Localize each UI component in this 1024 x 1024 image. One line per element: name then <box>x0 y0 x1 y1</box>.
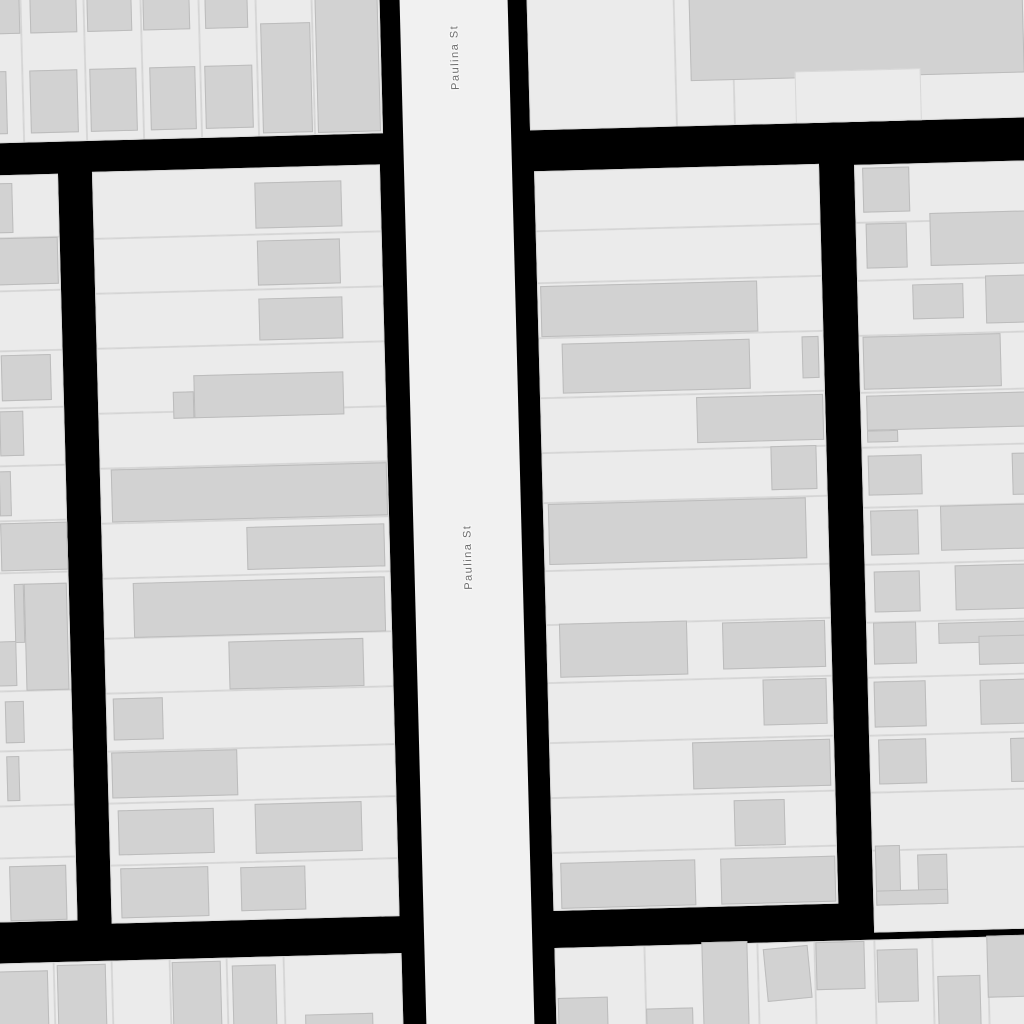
building <box>29 0 77 33</box>
building <box>980 678 1024 725</box>
block-far-right-parcel <box>870 788 1024 851</box>
building <box>1010 737 1024 782</box>
building <box>172 961 224 1024</box>
building <box>0 237 59 286</box>
building <box>0 0 20 35</box>
building <box>867 430 898 443</box>
building <box>246 523 385 570</box>
building <box>722 620 826 670</box>
building <box>929 210 1024 266</box>
building <box>14 584 26 643</box>
building <box>314 0 381 133</box>
building <box>877 949 919 1003</box>
building <box>696 394 824 443</box>
block-right-middle-parcel <box>534 164 820 231</box>
building <box>89 68 138 132</box>
building <box>9 865 67 921</box>
road-label-paulina-st: Paulina St <box>461 524 475 589</box>
block-right-middle-parcel <box>536 224 822 283</box>
building <box>111 462 388 522</box>
building <box>254 180 342 228</box>
building <box>560 859 696 909</box>
building <box>868 454 923 495</box>
building <box>940 503 1024 551</box>
building <box>646 1007 694 1024</box>
building <box>111 749 238 798</box>
building <box>559 620 688 677</box>
building <box>29 69 79 133</box>
building <box>562 339 751 394</box>
block-bottom-left-parcel <box>112 959 173 1024</box>
building <box>193 371 344 418</box>
building <box>701 941 750 1024</box>
building <box>232 964 279 1024</box>
building <box>720 856 836 905</box>
building <box>863 333 1002 390</box>
block-right-middle-parcel <box>551 791 837 853</box>
building <box>149 66 197 130</box>
road-paulina-st <box>399 0 536 1024</box>
building <box>257 238 341 285</box>
building <box>866 223 908 269</box>
building <box>0 641 17 687</box>
building <box>260 22 313 133</box>
building <box>173 391 195 419</box>
building <box>5 701 25 743</box>
building <box>874 570 921 612</box>
road-label-paulina-st: Paulina St <box>448 25 462 90</box>
building <box>0 411 24 457</box>
building <box>876 889 948 906</box>
building <box>866 391 1024 431</box>
building <box>24 583 70 691</box>
block-top-right-parcel-patch <box>795 68 922 123</box>
building <box>0 970 51 1024</box>
building <box>240 866 306 912</box>
building <box>204 0 248 29</box>
block-top-right-parcel <box>526 0 677 130</box>
building <box>978 634 1024 665</box>
building <box>862 166 910 212</box>
map-canvas[interactable]: Paulina StPaulina St <box>0 0 1024 1024</box>
building <box>258 296 343 340</box>
building <box>802 336 820 378</box>
building <box>255 801 363 854</box>
building <box>558 997 610 1024</box>
building <box>204 65 254 129</box>
building <box>937 975 982 1024</box>
building <box>0 522 68 572</box>
building <box>57 964 109 1024</box>
building <box>118 808 215 855</box>
map-rotation-layer: Paulina StPaulina St <box>0 0 1024 1024</box>
building <box>133 576 386 638</box>
building <box>955 563 1024 611</box>
building <box>0 183 14 234</box>
building <box>305 1013 374 1024</box>
building <box>1012 452 1024 495</box>
building <box>1 354 52 401</box>
building <box>912 283 964 319</box>
building <box>86 0 132 32</box>
building <box>0 471 12 516</box>
block-far-left-parcel <box>0 290 63 352</box>
building <box>540 281 758 338</box>
building <box>228 638 364 690</box>
building <box>734 799 786 846</box>
building <box>873 621 917 664</box>
building <box>878 738 927 784</box>
building <box>692 739 831 790</box>
block-right-middle-parcel <box>545 564 831 625</box>
building <box>120 866 209 918</box>
building <box>113 697 164 740</box>
building <box>142 0 190 30</box>
building <box>874 680 927 727</box>
building <box>762 678 827 726</box>
building <box>870 509 919 555</box>
building <box>763 945 813 1002</box>
building <box>986 934 1024 998</box>
building <box>985 274 1024 324</box>
block-far-left-parcel <box>0 805 76 859</box>
building <box>548 497 808 565</box>
building <box>770 445 817 490</box>
building <box>6 756 20 801</box>
building <box>815 941 865 990</box>
